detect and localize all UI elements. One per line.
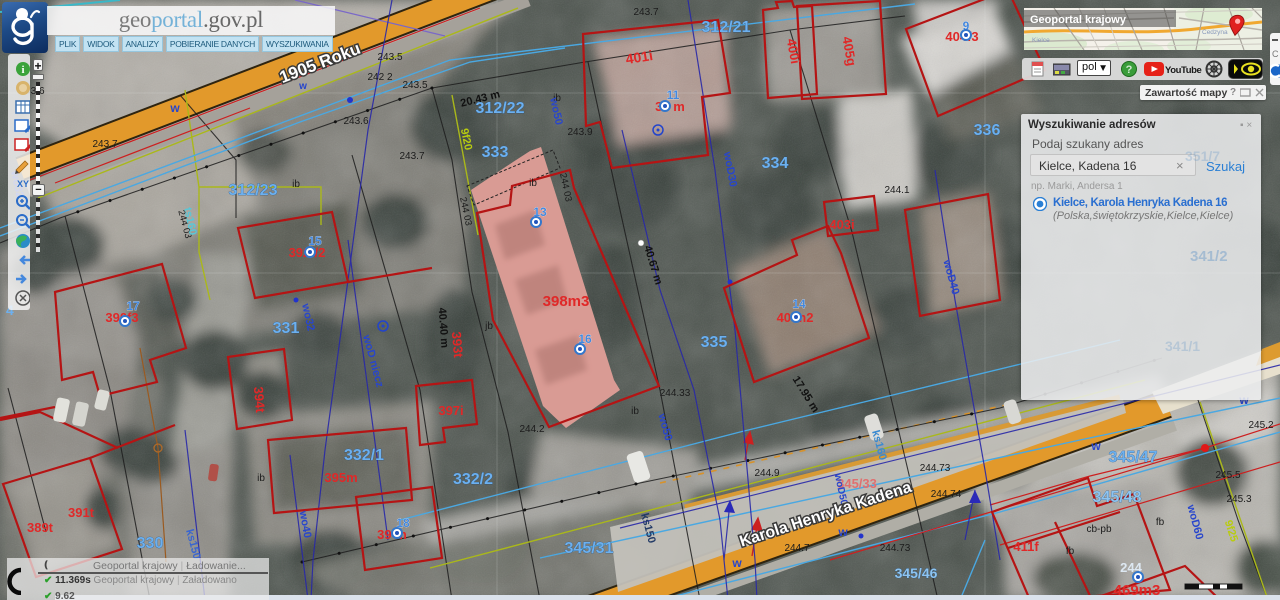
svg-text:244.7: 244.7 xyxy=(784,543,809,554)
svg-text:244.73: 244.73 xyxy=(920,463,951,474)
svg-text:w: w xyxy=(169,101,180,115)
svg-text:398m3: 398m3 xyxy=(543,293,590,310)
svg-text:335: 335 xyxy=(701,334,728,351)
svg-text:244.9: 244.9 xyxy=(754,468,779,479)
svg-text:312/21: 312/21 xyxy=(702,19,751,36)
svg-text:14: 14 xyxy=(792,297,806,311)
svg-text:244.2: 244.2 xyxy=(519,424,544,435)
svg-text:245.5: 245.5 xyxy=(1215,470,1240,481)
svg-text:394t: 394t xyxy=(251,386,268,414)
svg-text:jb: jb xyxy=(484,321,493,332)
svg-text:ib: ib xyxy=(257,473,265,484)
svg-text:C: C xyxy=(1272,49,1279,59)
svg-text:244.74: 244.74 xyxy=(931,489,962,500)
svg-text:393t: 393t xyxy=(449,331,466,359)
svg-text:ib: ib xyxy=(529,178,537,189)
svg-text:245.3: 245.3 xyxy=(1226,494,1251,505)
svg-text:fb: fb xyxy=(1066,546,1075,557)
svg-text:243.5: 243.5 xyxy=(377,52,402,63)
svg-text:Geoportal krajowy: Geoportal krajowy xyxy=(1030,14,1127,26)
svg-text:ib: ib xyxy=(292,179,300,190)
svg-text:w: w xyxy=(731,556,742,570)
svg-text:345/47: 345/47 xyxy=(1109,449,1158,466)
svg-text:Cedzyna: Cedzyna xyxy=(1202,29,1228,36)
svg-text:?: ? xyxy=(1126,64,1133,76)
svg-text:397i: 397i xyxy=(438,403,463,418)
svg-text:243.5: 243.5 xyxy=(402,80,427,91)
svg-text:243.7: 243.7 xyxy=(399,151,424,162)
svg-text:345/46: 345/46 xyxy=(895,565,938,581)
svg-text:242 2: 242 2 xyxy=(367,72,392,83)
svg-text:245.2: 245.2 xyxy=(1248,420,1273,431)
svg-text:331: 331 xyxy=(273,320,300,337)
svg-text:Kielce: Kielce xyxy=(1032,37,1050,44)
svg-text:332/1: 332/1 xyxy=(344,447,384,464)
svg-text:345/48: 345/48 xyxy=(1093,489,1142,506)
svg-text:244.33: 244.33 xyxy=(660,388,691,399)
svg-text:ib: ib xyxy=(631,406,639,417)
svg-text:w: w xyxy=(298,81,307,92)
svg-text:w: w xyxy=(1090,439,1101,453)
svg-text:244.73: 244.73 xyxy=(880,543,911,554)
svg-text:244.1: 244.1 xyxy=(884,185,909,196)
svg-text:243.6: 243.6 xyxy=(343,116,368,127)
svg-text:389t: 389t xyxy=(27,520,54,535)
svg-text:XY: XY xyxy=(17,179,29,189)
svg-text:391t: 391t xyxy=(68,505,95,520)
svg-text:336: 336 xyxy=(974,122,1001,139)
svg-text:243.7: 243.7 xyxy=(633,7,658,18)
svg-text:411f: 411f xyxy=(1013,539,1039,554)
svg-text:243.7: 243.7 xyxy=(92,139,117,150)
svg-text:333: 333 xyxy=(482,144,509,161)
svg-text:403i: 403i xyxy=(829,217,854,232)
svg-text:i: i xyxy=(21,64,24,76)
svg-text:312/23: 312/23 xyxy=(229,182,278,199)
svg-text:330: 330 xyxy=(137,535,164,552)
svg-text:w: w xyxy=(837,525,848,539)
svg-text:332/2: 332/2 xyxy=(453,471,493,488)
svg-text:345/31: 345/31 xyxy=(565,540,614,557)
svg-text:243.9: 243.9 xyxy=(567,127,592,138)
svg-text:cb-pb: cb-pb xyxy=(1086,524,1111,535)
svg-text:334: 334 xyxy=(762,155,789,172)
svg-text:YouTube: YouTube xyxy=(1165,65,1202,76)
svg-text:395m: 395m xyxy=(324,470,357,485)
svg-text:fb: fb xyxy=(1156,517,1165,528)
